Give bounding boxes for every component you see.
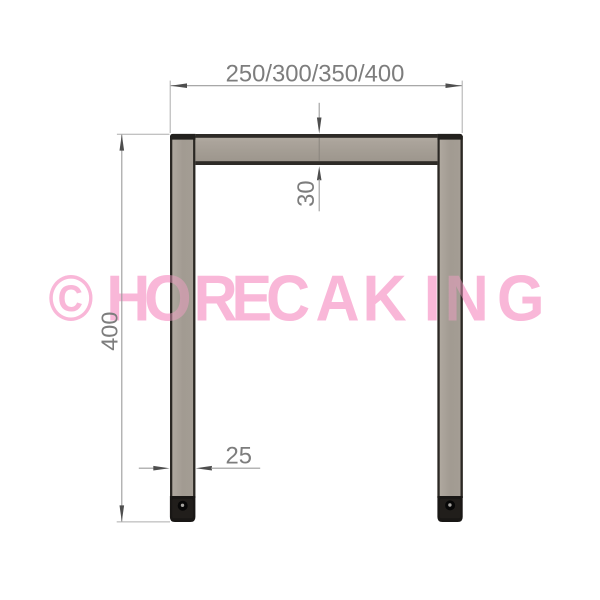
svg-text:©HORECAKING: ©HORECAKING bbox=[48, 263, 544, 335]
svg-text:25: 25 bbox=[226, 442, 252, 469]
svg-text:400: 400 bbox=[96, 312, 122, 351]
svg-text:250/300/350/400: 250/300/350/400 bbox=[226, 60, 405, 87]
svg-text:30: 30 bbox=[293, 180, 320, 206]
